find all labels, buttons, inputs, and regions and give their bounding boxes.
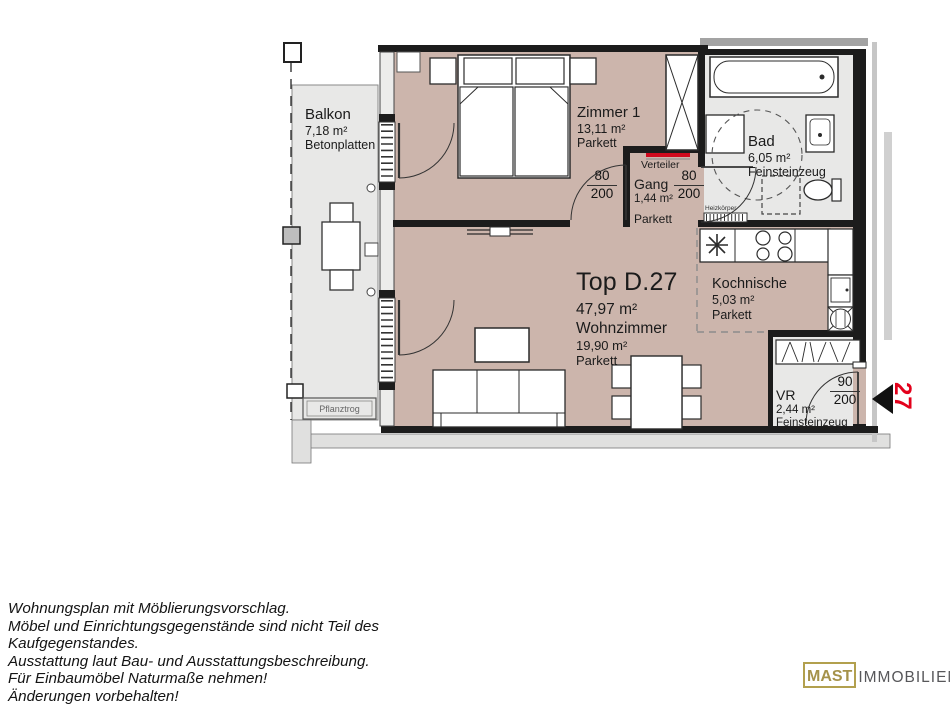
hall-label: Gang 1,44 m² Parkett bbox=[634, 176, 673, 226]
sofa bbox=[433, 370, 565, 427]
coat-rack bbox=[776, 340, 860, 364]
appliance-icon bbox=[828, 307, 853, 331]
floorplan-page: Balkon 7,18 m² Betonplatten Zimmer 1 13,… bbox=[0, 0, 950, 706]
entrance-number: 27 bbox=[888, 382, 916, 411]
unit-label: Top D.27 47,97 m² Wohnzimmer 19,90 m² Pa… bbox=[576, 268, 678, 369]
radiator-label: Heizkörper bbox=[705, 205, 736, 213]
coffee-table bbox=[475, 328, 529, 362]
fridge-icon bbox=[828, 275, 853, 307]
balcony-label: Balkon 7,18 m² Betonplatten bbox=[305, 106, 375, 153]
logo-brand-box: MAST bbox=[803, 662, 856, 688]
planter-label: Pflanztrog bbox=[303, 398, 376, 419]
bedroom-label: Zimmer 1 13,11 m² Parkett bbox=[577, 104, 640, 151]
kitchen-label: Kochnische 5,03 m² Parkett bbox=[712, 276, 787, 323]
bedroom-door-dimension: 80 200 bbox=[584, 169, 620, 202]
company-logo: MAST IMMOBILIEN bbox=[803, 662, 950, 688]
disclaimer-line: Wohnungsplan mit Möblierungsvorschlag. bbox=[8, 600, 379, 618]
disclaimer-line: Änderungen vorbehalten! bbox=[8, 688, 379, 706]
disclaimer-line: Möbel und Einrichtungsgegenstände sind n… bbox=[8, 618, 379, 636]
sink-icon bbox=[706, 234, 728, 256]
bathroom-label: Bad 6,05 m² Feinsteinzeug bbox=[748, 133, 826, 180]
disclaimer-text: Wohnungsplan mit Möblierungsvorschlag. M… bbox=[8, 600, 379, 706]
logo-suffix: IMMOBILIEN bbox=[856, 669, 950, 688]
bath-door-dimension: 80 200 bbox=[671, 169, 707, 202]
disclaimer-line: Kaufgegenstandes. bbox=[8, 635, 379, 653]
disclaimer-line: Ausstattung laut Bau- und Ausstattungsbe… bbox=[8, 653, 379, 671]
wardrobe bbox=[666, 55, 698, 150]
disclaimer-line: Für Einbaumöbel Naturmaße nehmen! bbox=[8, 670, 379, 688]
bathtub bbox=[710, 57, 838, 97]
entry-door-dimension: 90 200 bbox=[827, 375, 863, 408]
